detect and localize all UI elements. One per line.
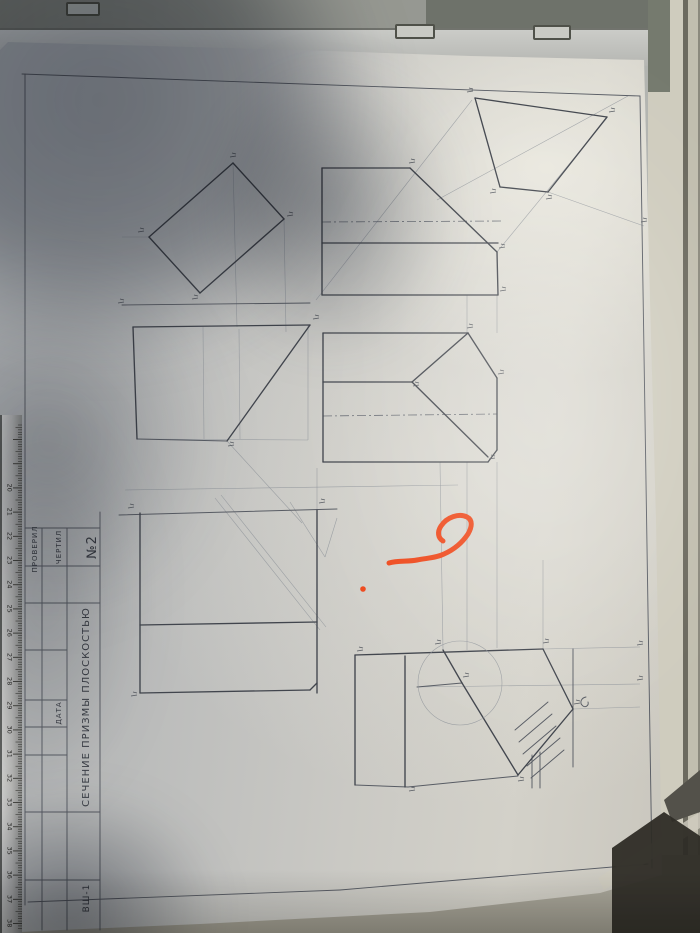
ruler-number: 26 [6,629,14,637]
construction-line [215,498,320,630]
outline-line [548,117,607,192]
vertex-label-mark [467,324,473,328]
vertex-label-mark [435,640,441,644]
construction-line [325,518,337,557]
construction-line [284,219,286,332]
ruler-number: 34 [6,822,14,830]
ruler-number: 29 [6,701,14,709]
vertex-label-mark [498,370,504,374]
outline-line [233,163,284,219]
pencil-extra-marks [581,697,588,707]
pencil-line [408,776,518,787]
ruler-number: 31 [6,750,14,758]
ruler-number: 20 [6,483,14,491]
vertex-label-mark [518,777,524,781]
outline-line [410,168,497,252]
pencil-line [122,303,310,305]
vertex-label-mark [138,228,144,232]
pencil-axis-lines [322,221,502,416]
photo-scene: 20212223242526272829303132333435363738 №… [0,0,700,933]
outline-line [488,450,497,462]
title-block-drew-label: ЧЕРТИЛ [55,530,63,564]
title-block-sheet-code: ВШ-1 [82,884,92,913]
outline-line [412,333,468,382]
pencil-line [519,714,552,742]
vertex-label-mark [500,287,506,291]
title-block-checked-label: ПРОВЕРИЛ [31,526,39,573]
clamp-lower-piece [612,812,700,933]
outline-line [443,650,462,683]
outline-line [475,98,500,187]
vertex-label-mark [543,639,549,643]
title-block-date-label: ДАТА [55,701,63,724]
vertex-label-mark [357,647,363,651]
title-block-sheet-number: №2 [85,535,100,559]
ruler-number: 35 [6,846,14,854]
outline-line [133,325,310,327]
ruler-number: 23 [6,556,14,564]
red-marker-annotation [360,515,471,591]
ruler-number: 27 [6,653,14,661]
ruler-number: 32 [6,774,14,782]
outline-line [468,333,497,378]
construction-line [543,647,640,649]
title-block: №2 СЕЧЕНИЕ ПРИЗМЫ ПЛОСКОСТЬЮ ЧЕРТИЛ ПРОВ… [31,526,100,913]
ruler-number: 24 [6,580,14,588]
vertex-label-mark [287,212,293,216]
axis-line [323,414,497,416]
outline-line [543,649,573,709]
pencil-line [640,96,652,868]
outline-line [462,683,518,775]
outline-line [412,382,488,457]
vertex-label-mark [313,315,319,319]
outline-line [140,622,317,625]
outline-line [149,163,233,237]
drawing-artwork: 20212223242526272829303132333435363738 №… [0,0,700,933]
clamp-upper-piece [664,770,700,822]
outline-line [475,98,607,117]
vertex-label-mark [118,299,124,303]
vertex-label-mark [490,189,496,193]
ruler-number: 30 [6,725,14,733]
vertex-label-mark [228,442,234,446]
ruler-number: 33 [6,798,14,806]
outline-line [497,252,498,295]
vertex-label-mark [409,159,415,163]
pencil-line [28,890,340,902]
outline-line [200,219,284,293]
red-dot [360,586,366,592]
pencil-mark [581,697,588,707]
title-block-title: СЕЧЕНИЕ ПРИЗМЫ ПЛОСКОСТЬЮ [81,607,92,807]
outline-line [310,683,317,690]
construction-line [548,192,644,226]
ruler-number: 28 [6,677,14,685]
construction-line [437,96,628,200]
vertex-label-mark [574,700,580,704]
ruler-number: 22 [6,532,14,540]
vertex-label-mark [230,153,236,157]
vertex-label-mark [192,295,198,299]
outline-line [149,237,200,293]
pencil-outline-lines [133,98,607,787]
pencil-line [22,74,640,96]
ruler-left-edge [0,415,2,933]
ruler-number: 36 [6,871,14,879]
pencil-line [515,702,548,730]
vertex-label-mark [637,676,643,680]
vertex-label-mark [128,504,134,508]
construction-line [573,707,640,709]
vertex-label-mark [609,108,615,112]
ruler-number: 21 [6,508,14,516]
vertex-label-mark [546,195,552,199]
vertex-label-mark [131,692,137,696]
vertex-label-mark [319,499,325,503]
outline-line [355,649,543,655]
axis-line [322,221,502,222]
ruler-number: 38 [6,919,14,927]
board-corner-clamp [598,770,700,933]
pencil-medium-lines [22,74,652,930]
construction-line [203,327,204,439]
outline-line [500,187,548,192]
pencil-construction-lines [122,96,644,709]
construction-line [233,163,237,327]
ruler-number: 25 [6,604,14,612]
vertex-label-mark [409,787,415,791]
construction-line [316,100,472,300]
construction-line [221,495,326,627]
red-question-squiggle [389,515,471,563]
outline-line [133,327,137,439]
vertex-label-mark [463,673,469,677]
ruler-number: 37 [6,895,14,903]
outline-line [140,690,310,693]
metal-ruler: 20212223242526272829303132333435363738 [0,415,22,933]
construction-line [125,485,458,490]
pencil-line [355,785,408,787]
vertex-label-mark [637,641,643,645]
